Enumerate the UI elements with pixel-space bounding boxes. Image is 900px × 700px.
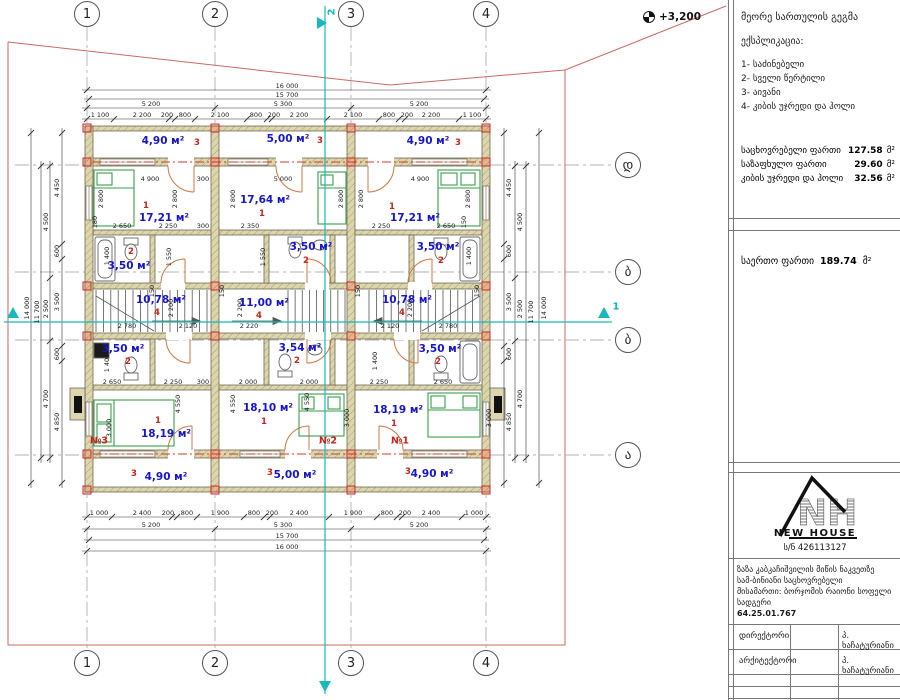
dim-label: 2 800 bbox=[337, 190, 345, 209]
dim-label: 2 100 bbox=[344, 111, 363, 119]
room-type-number: 3 bbox=[405, 467, 411, 477]
grid-bubble-ბ: ბ bbox=[615, 259, 641, 285]
dim-label: 5 300 bbox=[274, 100, 293, 108]
dim-label: 11 700 bbox=[33, 301, 41, 324]
dim-label: 2 220 bbox=[240, 322, 259, 330]
area-unit: მ² bbox=[887, 160, 895, 170]
dim-label: 2 000 bbox=[300, 378, 319, 386]
dim-label: 11 700 bbox=[527, 301, 535, 324]
dim-label: 2 350 bbox=[241, 222, 260, 230]
dim-label: 4 850 bbox=[505, 413, 513, 432]
grid-bubble-4: 4 bbox=[473, 650, 499, 676]
table-role: დირექტორი bbox=[739, 631, 789, 641]
section-label: 2 bbox=[327, 9, 338, 16]
dim-label: 1 100 bbox=[91, 111, 110, 119]
dim-label: 2 650 bbox=[434, 378, 453, 386]
unit-number: №2 bbox=[319, 436, 337, 447]
dim-label: 200 bbox=[266, 509, 278, 517]
room-type-number: 1 bbox=[389, 202, 395, 212]
dim-label: 16 000 bbox=[276, 543, 299, 551]
room-area-label: 18,19 м² bbox=[373, 404, 423, 416]
dim-label: 4 550 bbox=[174, 395, 182, 414]
room-area-label: 4,90 м² bbox=[407, 135, 450, 147]
room-area-label: 11,00 м² bbox=[239, 297, 289, 309]
dim-label: 150 bbox=[473, 285, 481, 297]
room-type-number: 3 bbox=[131, 469, 137, 479]
dim-label: 15 700 bbox=[276, 532, 299, 540]
panel-divider bbox=[729, 218, 900, 219]
grid-bubble-1: 1 bbox=[74, 1, 100, 27]
room-type-number: 3 bbox=[317, 136, 323, 146]
room-area-label: 3,54 м² bbox=[279, 342, 322, 354]
project-description-line: სამ-ბინიანი საცხოვრებელი bbox=[737, 576, 843, 587]
room-area-label: 4,90 м² bbox=[142, 135, 185, 147]
dim-label: 2 800 bbox=[229, 190, 237, 209]
room-area-label: 10,78 м² bbox=[382, 294, 432, 306]
dim-label: 3 500 bbox=[53, 293, 61, 312]
dim-label: 2 200 bbox=[422, 111, 441, 119]
dim-label: 800 bbox=[181, 509, 193, 517]
project-description-line: მისამართი: ბორჯომის რაიონი სოფელი bbox=[737, 587, 891, 598]
table-role: არქიტექტორი bbox=[739, 656, 796, 666]
grid-bubble-ბ: ბ bbox=[615, 327, 641, 353]
dim-label: 2 200 bbox=[133, 111, 152, 119]
room-area-label: 3,50 м² bbox=[290, 241, 333, 253]
dim-label: 5 000 bbox=[274, 175, 293, 183]
room-area-label: 10,78 м² bbox=[136, 294, 186, 306]
area-value: 127.58 bbox=[848, 146, 883, 156]
dim-label: 800 bbox=[179, 111, 191, 119]
total-area-value: 189.74 bbox=[820, 256, 857, 267]
area-label: კიბის უჯრედი და ჰოლი bbox=[741, 174, 850, 184]
area-value: 29.60 bbox=[854, 160, 882, 170]
grid-bubble-3: 3 bbox=[338, 1, 364, 27]
dim-label: 4 900 bbox=[411, 175, 430, 183]
dim-label: 2 250 bbox=[164, 378, 183, 386]
dim-label: 2 200 bbox=[290, 111, 309, 119]
dim-label: 2 400 bbox=[290, 509, 309, 517]
dim-label: 5 200 bbox=[410, 100, 429, 108]
room-area-label: 18,19 м² bbox=[141, 428, 191, 440]
grid-bubble-3: 3 bbox=[338, 650, 364, 676]
dim-label: 1 100 bbox=[463, 111, 482, 119]
panel-divider bbox=[729, 462, 900, 463]
explication-item: 4- კიბის უჯრედი და ჰოლი bbox=[741, 102, 855, 112]
dim-label: 1 400 bbox=[465, 247, 473, 266]
dim-label: 4 450 bbox=[53, 179, 61, 198]
dim-label: 150 bbox=[460, 216, 468, 228]
dim-label: 2 650 bbox=[103, 378, 122, 386]
room-area-label: 3,50 м² bbox=[108, 260, 151, 272]
dim-label: 600 bbox=[53, 348, 61, 360]
table-column-line bbox=[838, 624, 839, 700]
dim-label: 2 250 bbox=[372, 222, 391, 230]
dim-label: 2 120 bbox=[179, 322, 198, 330]
elevation-value: +3,200 bbox=[659, 11, 701, 23]
unit-number: №3 bbox=[90, 436, 108, 447]
logo-registration-number: ს/ნ 426113127 bbox=[729, 543, 900, 553]
dim-label: 4 850 bbox=[53, 413, 61, 432]
explication-item: 1- საძინებელი bbox=[741, 60, 804, 70]
dim-label: 2 400 bbox=[133, 509, 152, 517]
room-area-label: 4,90 м² bbox=[411, 468, 454, 480]
dim-label: 5 200 bbox=[142, 521, 161, 529]
panel-inner-border bbox=[733, 0, 734, 700]
explication-item: 2- სველი წერტილი bbox=[741, 74, 825, 84]
dim-label: 150 bbox=[218, 285, 226, 297]
room-type-number: 2 bbox=[435, 357, 441, 367]
table-name: პ. ხაჩატურიანი bbox=[842, 656, 900, 676]
dim-label: 300 bbox=[197, 378, 209, 386]
dim-label: 4 700 bbox=[516, 390, 524, 409]
dim-label: 300 bbox=[197, 222, 209, 230]
dim-label: 2 650 bbox=[113, 222, 132, 230]
table-line bbox=[729, 698, 900, 699]
grid-bubble-დ: დ bbox=[615, 152, 641, 178]
room-area-label: 5,00 м² bbox=[274, 469, 317, 481]
dim-label: 4 500 bbox=[516, 213, 524, 232]
grid-bubble-4: 4 bbox=[473, 1, 499, 27]
table-line bbox=[729, 686, 900, 687]
dim-label: 2 100 bbox=[211, 111, 230, 119]
dim-label: 4 550 bbox=[303, 393, 311, 412]
room-type-number: 2 bbox=[438, 256, 444, 266]
dim-label: 4 900 bbox=[141, 175, 160, 183]
explication-item: 3- აივანი bbox=[741, 88, 781, 98]
dim-label: 1 400 bbox=[371, 352, 379, 371]
dim-label: 3 000 bbox=[343, 409, 351, 428]
dim-label: 3 500 bbox=[505, 293, 513, 312]
room-area-label: 4,90 м² bbox=[145, 471, 188, 483]
dim-label: 800 bbox=[248, 509, 260, 517]
dim-label: 200 bbox=[401, 111, 413, 119]
dim-label: 2 120 bbox=[381, 322, 400, 330]
grid-bubble-2: 2 bbox=[202, 1, 228, 27]
grid-bubble-ა: ა bbox=[615, 442, 641, 468]
room-area-label: 17,21 м² bbox=[139, 212, 189, 224]
room-area-label: 3,50 м² bbox=[419, 343, 462, 355]
room-type-number: 2 bbox=[294, 356, 300, 366]
room-area-label: 17,21 м² bbox=[390, 212, 440, 224]
project-description-line: სადგერი bbox=[737, 598, 771, 609]
room-type-number: 1 bbox=[143, 201, 149, 211]
dim-label: 1 400 bbox=[103, 354, 111, 373]
dim-label: 2 500 bbox=[516, 300, 524, 319]
total-area-row: საერთო ფართი 189.74 მ² bbox=[741, 256, 895, 267]
dim-label: 600 bbox=[53, 245, 61, 257]
dim-label: 1 900 bbox=[344, 509, 363, 517]
area-row: საცხოვრებელი ფართი 127.58 მ² bbox=[741, 146, 895, 156]
section-label: 1 bbox=[613, 302, 620, 313]
dim-label: 1 550 bbox=[165, 248, 173, 267]
room-type-number: 4 bbox=[399, 308, 405, 318]
room-type-number: 1 bbox=[261, 417, 267, 427]
dim-label: 1 550 bbox=[259, 248, 267, 267]
dim-label: 180 bbox=[91, 216, 99, 228]
room-type-number: 1 bbox=[155, 416, 161, 426]
dim-label: 800 bbox=[383, 111, 395, 119]
dim-label: 600 bbox=[505, 245, 513, 257]
dim-label: 1 900 bbox=[211, 509, 230, 517]
grid-bubble-1: 1 bbox=[74, 650, 100, 676]
dim-label: 2 780 bbox=[439, 322, 458, 330]
table-name: პ. ხაჩატურიანი bbox=[842, 631, 900, 651]
dim-label: 2 780 bbox=[118, 322, 137, 330]
dim-label: 5 200 bbox=[410, 521, 429, 529]
room-type-number: 3 bbox=[194, 138, 200, 148]
room-area-label: 18,10 м² bbox=[243, 402, 293, 414]
room-area-label: 17,64 м² bbox=[240, 194, 290, 206]
dim-label: 300 bbox=[197, 175, 209, 183]
dim-label: 2 500 bbox=[42, 300, 50, 319]
grid-bubble-2: 2 bbox=[202, 650, 228, 676]
dim-label: 200 bbox=[268, 111, 280, 119]
dim-label: 600 bbox=[505, 348, 513, 360]
room-type-number: 2 bbox=[128, 247, 134, 257]
area-unit: მ² bbox=[887, 146, 895, 156]
room-type-number: 3 bbox=[455, 138, 461, 148]
panel-divider bbox=[729, 230, 900, 231]
dim-label: 14 000 bbox=[540, 297, 548, 320]
dim-label: 14 000 bbox=[23, 297, 31, 320]
area-label: საცხოვრებელი ფართი bbox=[741, 146, 844, 156]
dim-label: 2 800 bbox=[171, 190, 179, 209]
sheet-title: მეორე სართულის გეგმა bbox=[741, 12, 858, 23]
area-value: 32.56 bbox=[854, 174, 882, 184]
dim-label: 4 500 bbox=[42, 213, 50, 232]
area-row: კიბის უჯრედი და ჰოლი 32.56 მ² bbox=[741, 174, 895, 184]
project-description-line: ზაზა კაბკაჩიშვილის მიწის ნაკვეთზე bbox=[737, 565, 874, 576]
area-label: საზაფხულო ფართი bbox=[741, 160, 850, 170]
room-type-number: 3 bbox=[267, 468, 273, 478]
dim-label: 2 800 bbox=[464, 190, 472, 209]
room-area-label: 3,50 м² bbox=[417, 241, 460, 253]
room-type-number: 2 bbox=[303, 256, 309, 266]
dim-label: 3 000 bbox=[485, 409, 493, 428]
panel-divider bbox=[729, 558, 900, 559]
room-type-number: 1 bbox=[391, 419, 397, 429]
dim-label: 2 800 bbox=[357, 190, 365, 209]
dim-label: 800 bbox=[250, 111, 262, 119]
dim-label: 5 300 bbox=[274, 521, 293, 529]
dim-label: 2 800 bbox=[97, 190, 105, 209]
total-area-unit: მ² bbox=[863, 256, 872, 267]
dim-label: 1 000 bbox=[465, 509, 484, 517]
table-line bbox=[729, 624, 900, 625]
dim-label: 4 450 bbox=[505, 179, 513, 198]
dim-label: 2 000 bbox=[239, 378, 258, 386]
dim-label: 16 000 bbox=[276, 82, 299, 90]
dim-label: 15 700 bbox=[276, 91, 299, 99]
room-type-number: 2 bbox=[125, 357, 131, 367]
dim-label: 5 200 bbox=[142, 100, 161, 108]
area-row: საზაფხულო ფართი 29.60 მ² bbox=[741, 160, 895, 170]
dim-label: 2 250 bbox=[370, 378, 389, 386]
unit-number: №1 bbox=[391, 436, 409, 447]
area-unit: მ² bbox=[887, 174, 895, 184]
dim-label: 800 bbox=[381, 509, 393, 517]
room-type-number: 4 bbox=[256, 311, 262, 321]
dim-label: 2 400 bbox=[422, 509, 441, 517]
dim-label: 200 bbox=[161, 111, 173, 119]
dim-label: 150 bbox=[354, 285, 362, 297]
room-area-label: 3,50 м² bbox=[102, 343, 145, 355]
floor-plan-sheet: +3,200 16 00015 7005 2005 3005 2001 1002… bbox=[0, 0, 900, 700]
room-type-number: 1 bbox=[259, 209, 265, 219]
cadastral-code: 64.25.01.767 bbox=[737, 609, 796, 620]
dim-label: 1 000 bbox=[90, 509, 109, 517]
dim-label: 3 000 bbox=[105, 419, 113, 438]
total-area-label: საერთო ფართი bbox=[741, 256, 814, 267]
title-block-panel: მეორე სართულის გეგმა ექსპლიკაცია: 1- საძ… bbox=[728, 0, 900, 700]
dim-label: 200 bbox=[399, 509, 411, 517]
room-area-label: 5,00 м² bbox=[267, 133, 310, 145]
explication-heading: ექსპლიკაცია: bbox=[741, 36, 804, 47]
dim-label: 4 700 bbox=[42, 390, 50, 409]
room-type-number: 4 bbox=[154, 308, 160, 318]
dim-label: 200 bbox=[162, 509, 174, 517]
logo-name: NEW HOUSE bbox=[729, 528, 900, 539]
dim-label: 4 550 bbox=[229, 395, 237, 414]
